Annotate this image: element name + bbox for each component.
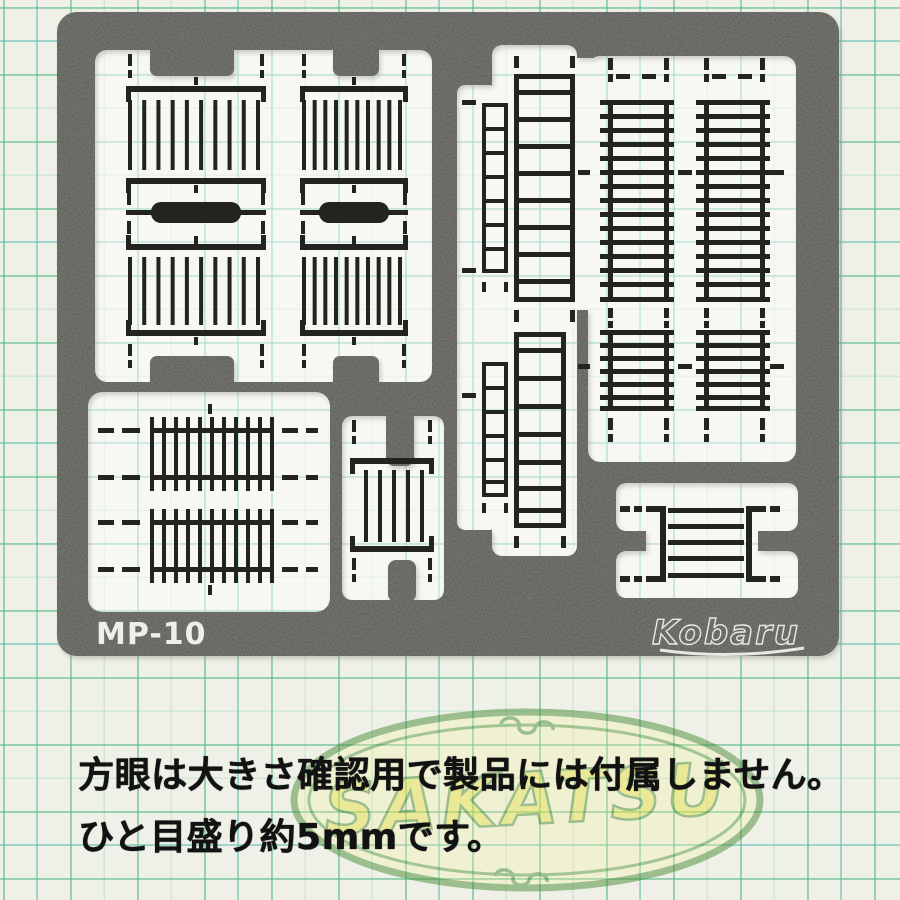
track-section-1 xyxy=(600,100,674,302)
caption-line-2: ひと目盛り約5mmです。 xyxy=(78,808,503,860)
part-number-label: MP-10 xyxy=(96,617,207,652)
grid-paper: MP-10 Kobaru SAKATSU 方眼は大きさ確認用で製品には付属しませ… xyxy=(0,0,900,900)
caption-line-1: 方眼は大きさ確認用で製品には付属しません。 xyxy=(78,746,843,798)
watermark-logo: SAKATSU xyxy=(294,712,760,888)
kobaru-logo-text: Kobaru xyxy=(652,613,800,653)
kobaru-logo: Kobaru xyxy=(652,613,804,655)
track-section-2 xyxy=(696,100,770,302)
